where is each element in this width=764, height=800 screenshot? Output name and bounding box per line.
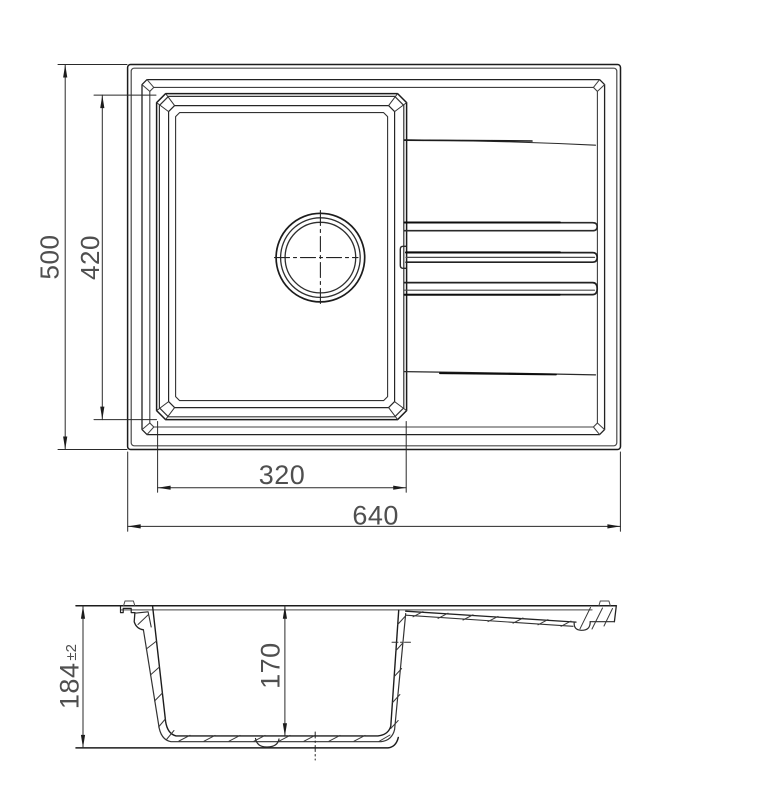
svg-text:500: 500	[34, 235, 64, 280]
svg-text:640: 640	[352, 501, 399, 531]
svg-text:±2: ±2	[63, 644, 80, 661]
svg-text:420: 420	[75, 235, 105, 280]
svg-text:170: 170	[255, 642, 285, 689]
svg-text:184: 184	[55, 663, 85, 710]
svg-text:320: 320	[259, 460, 306, 490]
